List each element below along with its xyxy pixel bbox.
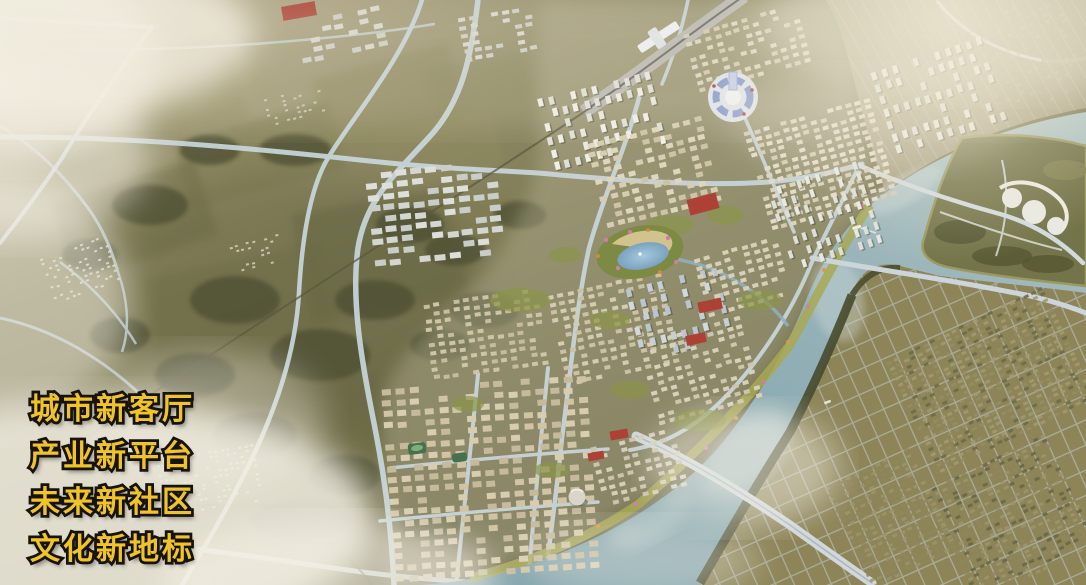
aerial-masterplan-render: 城市新客厅 城市新客厅 产业新平台 产业新平台 未来新社区 未来新社区 文化新地… [0, 0, 1086, 585]
slogan-overlay: 城市新客厅 城市新客厅 产业新平台 产业新平台 未来新社区 未来新社区 文化新地… [30, 383, 195, 569]
slogan-line-2: 产业新平台 产业新平台 [30, 430, 195, 477]
slogan-text: 产业新平台 [30, 431, 195, 475]
atmosphere-haze [0, 0, 1086, 130]
slogan-text: 文化新地标 [30, 524, 195, 568]
slogan-line-3: 未来新社区 未来新社区 [30, 476, 195, 523]
slogan-text: 城市新客厅 [30, 384, 195, 428]
slogan-text: 未来新社区 [30, 477, 195, 521]
slogan-line-1: 城市新客厅 城市新客厅 [30, 383, 195, 430]
slogan-line-4: 文化新地标 文化新地标 [30, 523, 195, 570]
